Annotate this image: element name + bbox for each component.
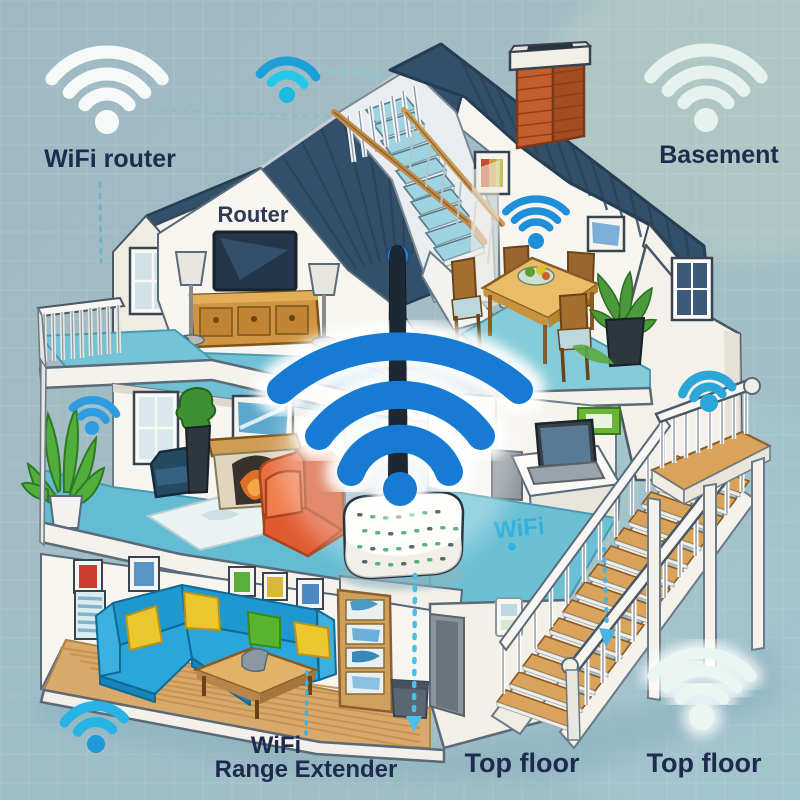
svg-text:Top floor: Top floor: [465, 748, 580, 778]
svg-text:WiFi: WiFi: [493, 513, 546, 544]
svg-text:Top floor: Top floor: [647, 748, 762, 778]
svg-text:Basement: Basement: [659, 141, 779, 169]
svg-text:WiFi: WiFi: [251, 732, 301, 759]
svg-text:WiFi router: WiFi router: [44, 145, 176, 173]
svg-text:Router: Router: [218, 202, 289, 227]
svg-text:Range Extender: Range Extender: [215, 756, 398, 783]
